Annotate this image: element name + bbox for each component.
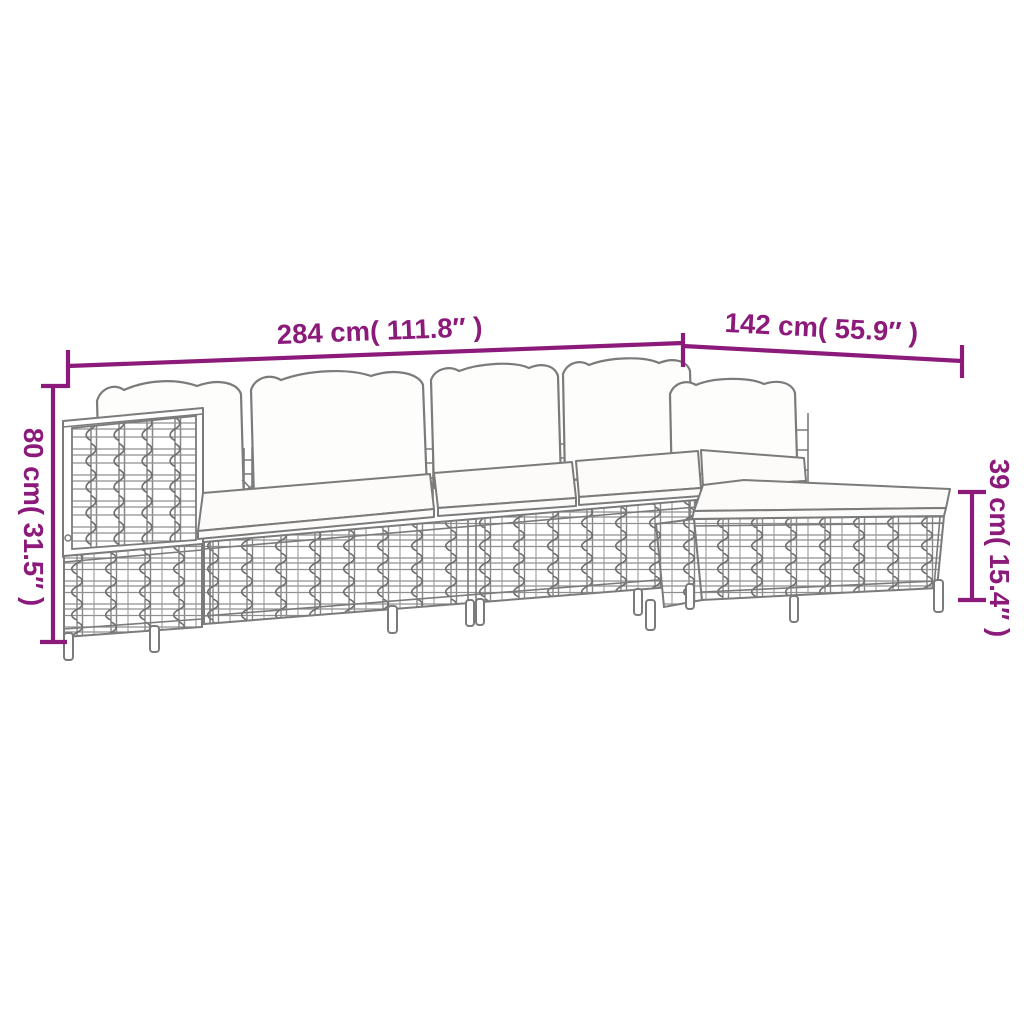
leg — [64, 633, 73, 660]
side-panel — [63, 408, 203, 557]
dimension-side-depth: 142 cm( 55.9″ ) — [683, 307, 962, 378]
leg — [934, 580, 943, 612]
dimension-line-seat-height — [958, 492, 986, 600]
footstool-cushion-edge — [692, 508, 946, 519]
diagram-canvas: 284 cm( 111.8″ ) 142 cm( 55.9″ ) 80 cm( … — [0, 0, 1024, 1024]
base-left-side — [64, 544, 202, 637]
leg — [150, 626, 159, 652]
leg — [790, 596, 798, 622]
leg — [466, 600, 474, 626]
dimension-back-height: 80 cm( 31.5″ ) — [18, 386, 68, 642]
footstool-base-front — [694, 516, 944, 600]
footstool — [656, 480, 950, 607]
dimension-seat-height: 39 cm( 15.4″ ) — [958, 459, 1015, 637]
dimension-label-side-depth: 142 cm( 55.9″ ) — [724, 307, 919, 348]
dimension-label-back-height: 80 cm( 31.5″ ) — [18, 428, 49, 606]
frame-bolt — [65, 535, 71, 541]
dimension-label-seat-height: 39 cm( 15.4″ ) — [984, 459, 1015, 637]
leg — [686, 584, 694, 609]
product-dimension-diagram: 284 cm( 111.8″ ) 142 cm( 55.9″ ) 80 cm( … — [0, 0, 1024, 1024]
dimension-label-overall-width: 284 cm( 111.8″ ) — [276, 311, 483, 350]
leg — [634, 589, 642, 615]
leg — [388, 606, 397, 633]
leg — [476, 599, 484, 625]
leg — [646, 600, 655, 630]
dimension-line-side-depth — [683, 345, 962, 378]
sofa-line-drawing — [63, 358, 950, 660]
footstool-cushion — [694, 480, 950, 511]
